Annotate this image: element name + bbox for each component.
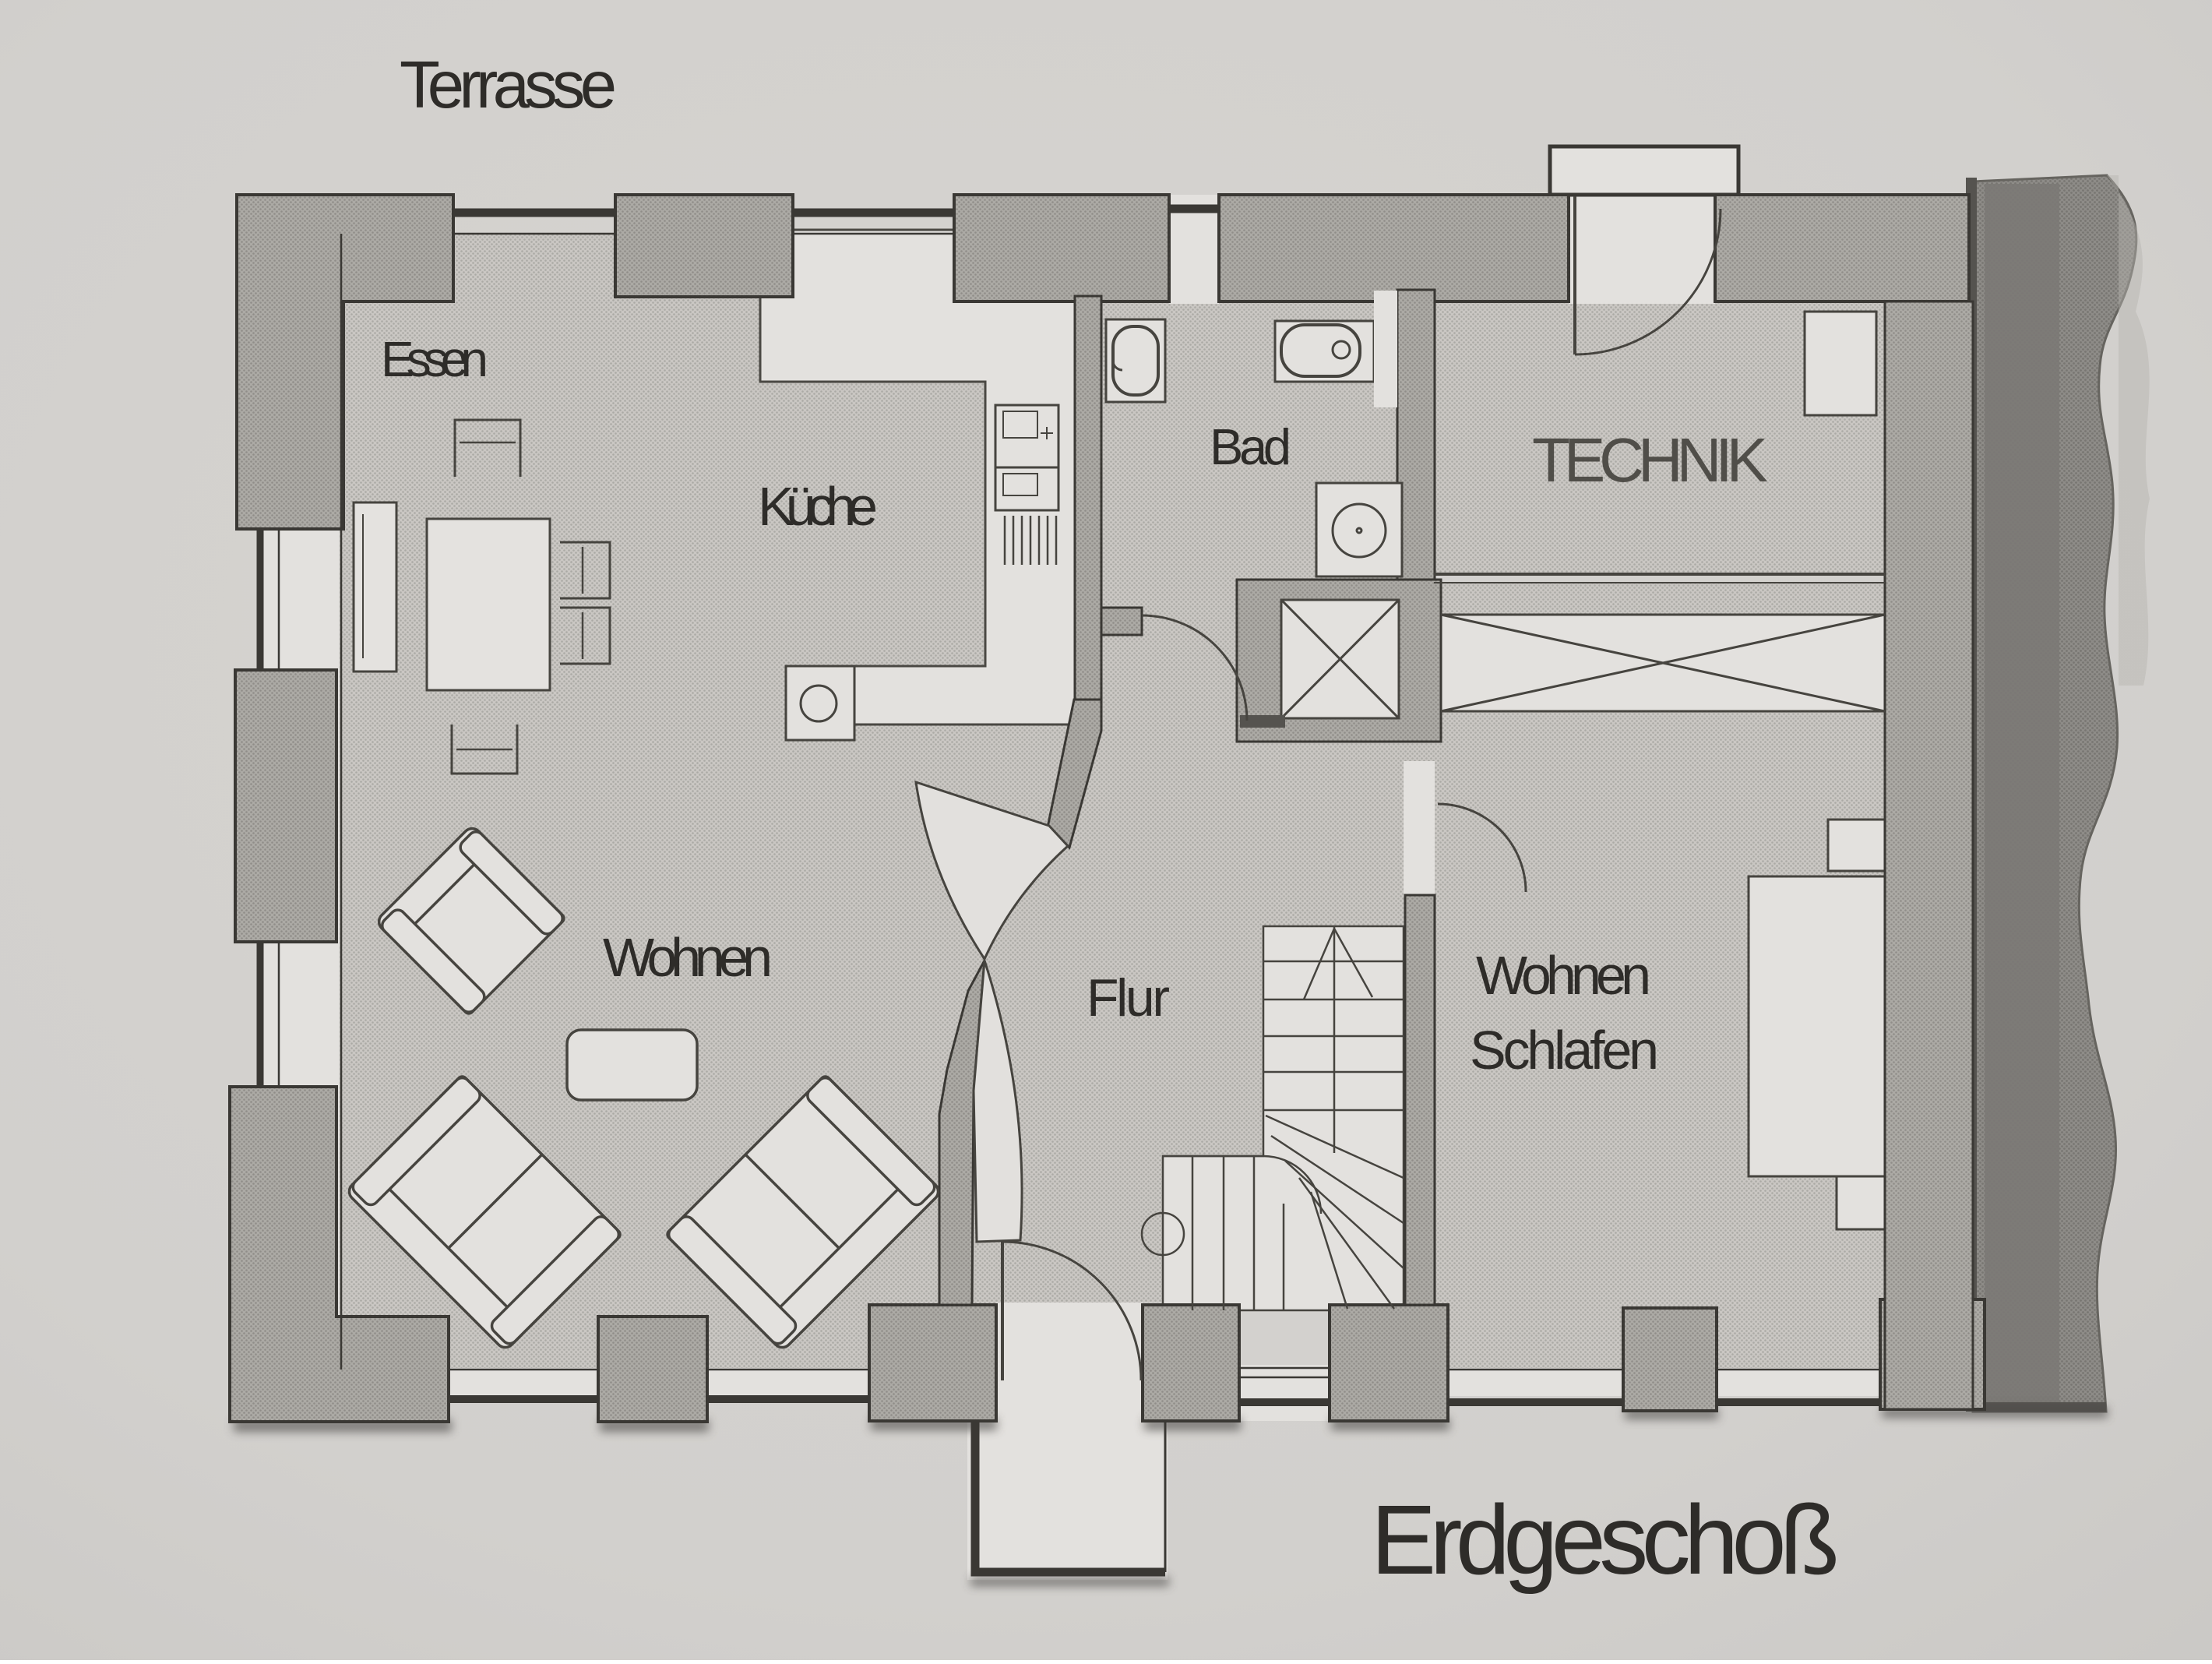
svg-text:Erdgeschoß: Erdgeschoß <box>1371 1485 1840 1595</box>
svg-text:Wohnen: Wohnen <box>603 927 773 988</box>
svg-text:Schlafen: Schlafen <box>1470 1020 1659 1081</box>
svg-text:TECHNIK: TECHNIK <box>1532 425 1768 495</box>
svg-text:Bad: Bad <box>1210 418 1291 475</box>
svg-text:Flur: Flur <box>1087 968 1170 1028</box>
svg-text:Terrasse: Terrasse <box>400 48 617 122</box>
svg-text:Küche: Küche <box>758 476 878 537</box>
svg-text:Wohnen: Wohnen <box>1476 945 1651 1006</box>
svg-text:Essen: Essen <box>381 331 488 387</box>
